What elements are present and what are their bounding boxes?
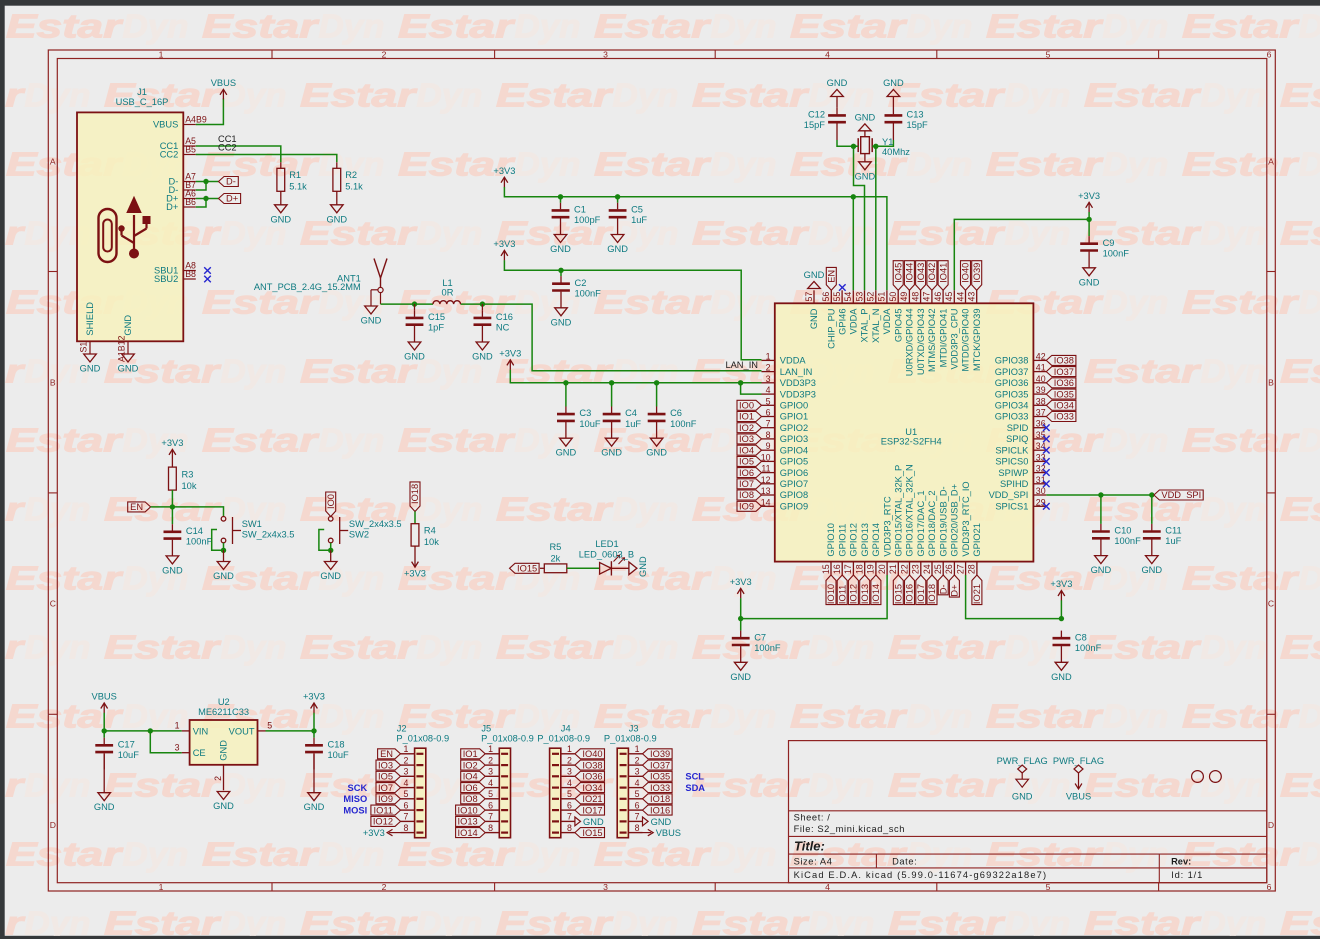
svg-text:Estar: Estar xyxy=(692,767,810,804)
svg-text:Dyn: Dyn xyxy=(319,698,385,735)
svg-text:GPIO33: GPIO33 xyxy=(995,412,1029,422)
svg-text:GPIO15/XTAL_32K_P: GPIO15/XTAL_32K_P xyxy=(894,465,904,557)
svg-text:IO15: IO15 xyxy=(894,584,904,604)
svg-text:+3V3: +3V3 xyxy=(1050,579,1072,589)
svg-text:GPIO0: GPIO0 xyxy=(780,401,808,411)
svg-text:Dyn: Dyn xyxy=(319,836,385,873)
svg-text:VBUS: VBUS xyxy=(1066,792,1091,802)
svg-text:VDDA: VDDA xyxy=(882,308,892,335)
svg-text:GND: GND xyxy=(638,556,648,577)
svg-text:GND: GND xyxy=(1012,792,1033,802)
svg-text:55: 55 xyxy=(832,292,842,302)
svg-text:IO1: IO1 xyxy=(739,412,754,422)
svg-text:SBU2: SBU2 xyxy=(154,274,178,284)
svg-text:GND: GND xyxy=(583,817,604,827)
svg-text:47: 47 xyxy=(922,292,932,302)
svg-text:IO36: IO36 xyxy=(1054,378,1074,388)
svg-text:5: 5 xyxy=(488,789,493,799)
svg-text:IO11: IO11 xyxy=(837,585,847,604)
svg-text:GPIO34: GPIO34 xyxy=(995,401,1029,411)
svg-text:IO18: IO18 xyxy=(927,584,937,604)
svg-text:GND: GND xyxy=(730,672,751,682)
svg-text:10: 10 xyxy=(761,452,771,462)
svg-text:IO10: IO10 xyxy=(458,805,478,815)
svg-text:Dyn: Dyn xyxy=(221,767,287,804)
svg-text:Date:: Date: xyxy=(892,857,917,867)
svg-text:R5: R5 xyxy=(549,542,561,552)
svg-text:9: 9 xyxy=(766,441,771,451)
svg-text:Dyn: Dyn xyxy=(1103,146,1169,183)
svg-text:Rev:: Rev: xyxy=(1171,857,1191,867)
svg-text:IO17: IO17 xyxy=(916,584,926,604)
svg-text:Estar: Estar xyxy=(496,629,614,666)
svg-text:+3V3: +3V3 xyxy=(303,692,325,702)
svg-text:CC2: CC2 xyxy=(160,150,179,160)
svg-text:C7: C7 xyxy=(754,632,766,642)
svg-text:D+: D+ xyxy=(950,584,960,596)
svg-text:Estar: Estar xyxy=(1084,77,1202,114)
svg-text:4: 4 xyxy=(488,778,493,788)
svg-text:12: 12 xyxy=(761,475,771,485)
svg-text:Estar: Estar xyxy=(6,698,124,735)
svg-text:C12: C12 xyxy=(808,110,825,120)
svg-text:2: 2 xyxy=(382,50,387,60)
svg-text:IO9: IO9 xyxy=(378,794,393,804)
svg-text:GND: GND xyxy=(855,112,876,122)
svg-text:Dyn: Dyn xyxy=(221,629,287,666)
svg-text:Title:: Title: xyxy=(794,839,825,854)
svg-text:Size: A4: Size: A4 xyxy=(794,857,833,867)
svg-text:Estar: Estar xyxy=(104,629,222,666)
svg-text:11: 11 xyxy=(761,464,770,474)
svg-text:J3: J3 xyxy=(629,724,639,734)
svg-text:IO15: IO15 xyxy=(517,564,537,574)
svg-text:CC2: CC2 xyxy=(218,142,237,152)
svg-text:IO45: IO45 xyxy=(893,263,903,283)
svg-text:7: 7 xyxy=(766,419,771,429)
svg-text:GND: GND xyxy=(855,171,876,181)
svg-text:GND: GND xyxy=(213,801,234,811)
svg-text:Estar: Estar xyxy=(594,8,712,45)
svg-text:GND: GND xyxy=(651,817,672,827)
svg-text:5.1k: 5.1k xyxy=(345,181,363,191)
svg-text:GND: GND xyxy=(601,448,622,458)
svg-text:IO9: IO9 xyxy=(739,502,754,512)
svg-text:4: 4 xyxy=(635,778,640,788)
svg-text:Estar: Estar xyxy=(1182,284,1300,321)
svg-text:VDD3P3_CPU: VDD3P3_CPU xyxy=(950,309,960,370)
svg-text:Dyn: Dyn xyxy=(1299,146,1320,183)
svg-text:USB_C_16P: USB_C_16P xyxy=(116,97,169,107)
svg-text:8: 8 xyxy=(403,823,408,833)
svg-text:GPIO14: GPIO14 xyxy=(871,523,881,557)
svg-text:IO41: IO41 xyxy=(938,263,948,283)
svg-text:A4B9: A4B9 xyxy=(185,114,207,124)
svg-text:38: 38 xyxy=(1036,396,1046,406)
svg-text:IO37: IO37 xyxy=(1054,367,1074,377)
svg-text:IO4: IO4 xyxy=(739,445,754,455)
svg-text:GPIO12: GPIO12 xyxy=(849,523,859,557)
svg-text:+3V3: +3V3 xyxy=(1078,191,1100,201)
svg-text:26: 26 xyxy=(944,564,954,574)
svg-text:100nF: 100nF xyxy=(670,419,697,429)
svg-text:SPICS1: SPICS1 xyxy=(995,502,1028,512)
svg-text:GPIO2: GPIO2 xyxy=(780,423,808,433)
svg-text:2k: 2k xyxy=(550,553,560,563)
svg-text:Estar: Estar xyxy=(1182,560,1300,597)
svg-text:Dyn: Dyn xyxy=(809,767,875,804)
svg-text:IO12: IO12 xyxy=(849,584,859,604)
svg-text:D-: D- xyxy=(226,177,236,187)
svg-text:SPID: SPID xyxy=(1007,423,1029,433)
svg-text:Estar: Estar xyxy=(398,422,516,459)
svg-text:6: 6 xyxy=(1267,50,1272,60)
svg-text:IO6: IO6 xyxy=(739,468,754,478)
svg-text:Estar: Estar xyxy=(594,146,712,183)
svg-text:IO6: IO6 xyxy=(463,783,478,793)
svg-text:Dyn: Dyn xyxy=(515,8,581,45)
svg-text:GPIO4: GPIO4 xyxy=(780,445,808,455)
svg-text:GND: GND xyxy=(219,740,229,761)
svg-text:Estar: Estar xyxy=(692,215,810,252)
svg-text:C10: C10 xyxy=(1114,526,1131,536)
svg-text:Estar: Estar xyxy=(986,698,1104,735)
svg-text:Estar: Estar xyxy=(104,77,222,114)
svg-text:GPIO19/USB_D-: GPIO19/USB_D- xyxy=(938,486,948,556)
svg-text:VDD3P3: VDD3P3 xyxy=(780,378,816,388)
svg-text:GPIO38: GPIO38 xyxy=(995,356,1029,366)
svg-text:3: 3 xyxy=(567,767,572,777)
svg-text:Dyn: Dyn xyxy=(1103,698,1169,735)
svg-text:SW1: SW1 xyxy=(242,519,262,529)
svg-text:6: 6 xyxy=(488,800,493,810)
svg-text:23: 23 xyxy=(911,564,921,574)
svg-text:100nF: 100nF xyxy=(575,288,602,298)
svg-text:C18: C18 xyxy=(328,739,345,749)
svg-text:GPIO5: GPIO5 xyxy=(780,457,808,467)
svg-text:2: 2 xyxy=(488,755,493,765)
svg-text:IO43: IO43 xyxy=(916,263,926,283)
svg-text:Dyn: Dyn xyxy=(711,836,777,873)
svg-text:R3: R3 xyxy=(182,469,194,479)
svg-text:IO5: IO5 xyxy=(378,772,393,782)
svg-text:A: A xyxy=(1268,156,1274,166)
svg-text:GND: GND xyxy=(80,364,101,374)
svg-text:Dyn: Dyn xyxy=(711,698,777,735)
svg-text:GND: GND xyxy=(162,565,183,575)
svg-text:B6: B6 xyxy=(185,197,196,207)
svg-text:CHIP_PU: CHIP_PU xyxy=(827,309,837,349)
svg-text:Dyn: Dyn xyxy=(1201,905,1267,940)
svg-text:Dyn: Dyn xyxy=(1299,836,1320,873)
svg-text:VDD3P3: VDD3P3 xyxy=(780,389,816,399)
svg-text:Dyn: Dyn xyxy=(711,146,777,183)
svg-text:1: 1 xyxy=(567,744,572,754)
svg-text:100nF: 100nF xyxy=(1103,248,1130,258)
svg-text:GND: GND xyxy=(809,308,819,329)
svg-text:GPIO20/USB_D+: GPIO20/USB_D+ xyxy=(950,484,960,557)
svg-text:SDA: SDA xyxy=(685,783,705,793)
svg-text:3: 3 xyxy=(635,767,640,777)
svg-text:Dyn: Dyn xyxy=(613,491,679,528)
svg-text:B: B xyxy=(1268,378,1274,388)
svg-text:Estar: Estar xyxy=(398,836,516,873)
svg-text:1: 1 xyxy=(159,50,164,60)
svg-text:C3: C3 xyxy=(579,408,591,418)
svg-text:Estar: Estar xyxy=(888,905,1006,940)
svg-text:6: 6 xyxy=(1267,882,1272,892)
svg-text:Dyn: Dyn xyxy=(417,629,483,666)
svg-text:SPIWP: SPIWP xyxy=(998,468,1028,478)
svg-text:28: 28 xyxy=(967,564,977,574)
svg-text:SPICS0: SPICS0 xyxy=(995,457,1028,467)
svg-text:Dyn: Dyn xyxy=(417,905,483,940)
svg-text:GND: GND xyxy=(883,78,904,88)
svg-text:48: 48 xyxy=(910,292,920,302)
svg-text:GND: GND xyxy=(270,214,291,224)
svg-text:100nF: 100nF xyxy=(186,537,213,547)
svg-text:27: 27 xyxy=(955,564,965,574)
svg-text:Dyn: Dyn xyxy=(123,836,189,873)
svg-text:Estar: Estar xyxy=(888,77,1006,114)
svg-text:IO38: IO38 xyxy=(1054,356,1074,366)
svg-text:Dyn: Dyn xyxy=(515,836,581,873)
svg-text:IO35: IO35 xyxy=(650,772,670,782)
svg-text:5: 5 xyxy=(567,789,572,799)
svg-text:Estar: Estar xyxy=(692,77,810,114)
svg-text:7: 7 xyxy=(635,812,640,822)
svg-text:VBUS: VBUS xyxy=(656,828,681,838)
svg-text:IO8: IO8 xyxy=(739,490,754,500)
svg-text:Estar: Estar xyxy=(790,8,908,45)
svg-text:20: 20 xyxy=(877,564,887,574)
svg-text:51: 51 xyxy=(877,292,887,302)
svg-text:8: 8 xyxy=(766,430,771,440)
svg-text:Dyn: Dyn xyxy=(1201,491,1267,528)
svg-text:57: 57 xyxy=(804,292,814,302)
svg-text:IO40: IO40 xyxy=(582,749,602,759)
svg-text:IO7: IO7 xyxy=(378,783,393,793)
svg-text:ANT_PCB_2.4G_15.2MM: ANT_PCB_2.4G_15.2MM xyxy=(254,282,361,292)
svg-text:7: 7 xyxy=(488,812,493,822)
svg-text:Dyn: Dyn xyxy=(417,77,483,114)
svg-text:IO1: IO1 xyxy=(463,749,478,759)
svg-text:30: 30 xyxy=(1036,486,1046,496)
svg-text:GND: GND xyxy=(123,315,133,336)
svg-text:1: 1 xyxy=(488,744,493,754)
svg-text:VDD_SPI: VDD_SPI xyxy=(989,490,1029,500)
svg-text:J2: J2 xyxy=(397,724,407,734)
svg-text:U0TXD/GPIO43: U0TXD/GPIO43 xyxy=(916,309,926,376)
svg-text:Estar: Estar xyxy=(986,146,1104,183)
svg-text:R4: R4 xyxy=(424,525,436,535)
svg-text:46: 46 xyxy=(933,292,943,302)
svg-text:C17: C17 xyxy=(118,739,135,749)
svg-text:Estar: Estar xyxy=(790,698,908,735)
svg-text:IO3: IO3 xyxy=(378,760,393,770)
svg-text:D: D xyxy=(1268,820,1274,830)
svg-text:EN: EN xyxy=(827,270,837,283)
svg-text:Estar: Estar xyxy=(496,491,614,528)
svg-text:6: 6 xyxy=(635,800,640,810)
svg-text:SPICLK: SPICLK xyxy=(995,445,1029,455)
svg-text:XTAL_P: XTAL_P xyxy=(860,309,870,343)
svg-text:Estar: Estar xyxy=(986,8,1104,45)
svg-text:Estar: Estar xyxy=(398,698,516,735)
svg-text:Estar: Estar xyxy=(1280,77,1320,114)
svg-text:+3V3: +3V3 xyxy=(730,577,752,587)
svg-text:IO3: IO3 xyxy=(739,434,754,444)
svg-text:Dyn: Dyn xyxy=(1103,8,1169,45)
svg-text:GPIO3: GPIO3 xyxy=(780,434,808,444)
svg-text:Estar: Estar xyxy=(300,905,418,940)
svg-text:29: 29 xyxy=(1036,497,1046,507)
svg-text:15: 15 xyxy=(821,564,831,574)
svg-text:34: 34 xyxy=(1036,441,1046,451)
svg-text:4: 4 xyxy=(766,385,771,395)
svg-text:+3V3: +3V3 xyxy=(493,166,515,176)
svg-text:EN: EN xyxy=(130,502,143,512)
svg-text:GND: GND xyxy=(404,352,425,362)
svg-text:C13: C13 xyxy=(907,110,924,120)
svg-text:19: 19 xyxy=(866,564,876,574)
svg-text:NC: NC xyxy=(496,323,510,333)
svg-text:10k: 10k xyxy=(182,481,197,491)
svg-text:14: 14 xyxy=(761,497,771,507)
svg-text:40Mhz: 40Mhz xyxy=(882,147,910,157)
svg-text:3: 3 xyxy=(603,882,608,892)
svg-text:GND: GND xyxy=(607,244,628,254)
svg-text:D-: D- xyxy=(938,584,948,594)
svg-text:IO13: IO13 xyxy=(860,584,870,604)
svg-text:Sheet: /: Sheet: / xyxy=(794,813,831,823)
svg-text:MTDD/GPIO40: MTDD/GPIO40 xyxy=(961,308,971,371)
svg-text:Estar: Estar xyxy=(692,905,810,940)
svg-text:GND: GND xyxy=(472,352,493,362)
svg-text:D+: D+ xyxy=(226,194,238,204)
svg-text:LAN_IN: LAN_IN xyxy=(780,367,813,377)
svg-text:Estar: Estar xyxy=(888,767,1006,804)
svg-text:C11: C11 xyxy=(1165,526,1181,536)
svg-text:Dyn: Dyn xyxy=(1201,77,1267,114)
svg-text:Estar: Estar xyxy=(1182,146,1300,183)
svg-text:IO18: IO18 xyxy=(410,484,420,504)
svg-text:24: 24 xyxy=(922,564,932,574)
svg-text:C9: C9 xyxy=(1103,238,1115,248)
svg-text:+3V3: +3V3 xyxy=(499,349,521,359)
svg-text:GND: GND xyxy=(1079,277,1100,287)
svg-text:MISO: MISO xyxy=(343,794,367,804)
svg-text:Estar: Estar xyxy=(1280,353,1320,390)
svg-text:Estar: Estar xyxy=(6,836,124,873)
svg-text:Dyn: Dyn xyxy=(1299,8,1320,45)
svg-text:10uF: 10uF xyxy=(579,419,601,429)
svg-text:SW_2x4x3.5: SW_2x4x3.5 xyxy=(349,519,402,529)
svg-text:Dyn: Dyn xyxy=(1103,422,1169,459)
svg-text:P_01x08-0.9: P_01x08-0.9 xyxy=(396,733,449,743)
svg-text:1: 1 xyxy=(635,744,640,754)
svg-text:C8: C8 xyxy=(1075,632,1087,642)
svg-text:IO10: IO10 xyxy=(826,584,836,604)
svg-text:6: 6 xyxy=(567,800,572,810)
svg-text:VDD3P3_RTC: VDD3P3_RTC xyxy=(882,496,892,557)
svg-text:SW2: SW2 xyxy=(349,530,369,540)
svg-text:SPIQ: SPIQ xyxy=(1006,434,1028,444)
svg-text:Estar: Estar xyxy=(6,422,124,459)
svg-text:7: 7 xyxy=(403,812,408,822)
svg-text:5: 5 xyxy=(635,789,640,799)
svg-text:Dyn: Dyn xyxy=(123,8,189,45)
svg-text:5: 5 xyxy=(766,396,771,406)
svg-text:GPIO9: GPIO9 xyxy=(780,502,808,512)
svg-text:52: 52 xyxy=(866,292,876,302)
svg-text:IO5: IO5 xyxy=(739,457,754,467)
svg-text:1: 1 xyxy=(159,882,164,892)
svg-text:3: 3 xyxy=(403,767,408,777)
svg-text:C6: C6 xyxy=(670,408,682,418)
svg-text:P_01x08-0.9: P_01x08-0.9 xyxy=(604,733,657,743)
svg-text:Estar: Estar xyxy=(692,629,810,666)
svg-text:Estar: Estar xyxy=(104,491,222,528)
svg-text:IO7: IO7 xyxy=(739,479,754,489)
svg-text:SPIHD: SPIHD xyxy=(1000,479,1029,489)
svg-text:4: 4 xyxy=(567,778,572,788)
svg-text:IO0: IO0 xyxy=(326,494,336,509)
svg-text:4: 4 xyxy=(403,778,408,788)
svg-text:1: 1 xyxy=(175,721,180,731)
svg-text:C: C xyxy=(50,599,56,609)
svg-text:VDD3P3_RTC_IO: VDD3P3_RTC_IO xyxy=(961,481,971,556)
svg-text:CE: CE xyxy=(193,748,206,758)
svg-text:Estar: Estar xyxy=(202,8,320,45)
svg-text:GND: GND xyxy=(326,214,347,224)
svg-text:VDD_SPI: VDD_SPI xyxy=(1161,490,1201,500)
svg-text:MOSI: MOSI xyxy=(343,805,367,815)
svg-text:R1: R1 xyxy=(289,170,301,180)
svg-text:45: 45 xyxy=(944,292,954,302)
svg-text:D+: D+ xyxy=(166,202,178,212)
svg-text:IO21: IO21 xyxy=(972,584,982,604)
svg-text:File: S2_mini.kicad_sch: File: S2_mini.kicad_sch xyxy=(794,824,905,834)
svg-text:Dyn: Dyn xyxy=(417,215,483,252)
svg-text:+3V3: +3V3 xyxy=(493,239,515,249)
svg-text:GPIO21: GPIO21 xyxy=(972,523,982,557)
svg-text:Estar: Estar xyxy=(300,215,418,252)
svg-text:Dyn: Dyn xyxy=(1299,284,1320,321)
svg-text:GPIO36: GPIO36 xyxy=(995,378,1029,388)
svg-text:5: 5 xyxy=(1046,50,1051,60)
svg-text:Dyn: Dyn xyxy=(1103,284,1169,321)
svg-text:IO36: IO36 xyxy=(582,772,602,782)
svg-text:1: 1 xyxy=(403,744,408,754)
svg-text:IO16: IO16 xyxy=(905,584,915,604)
svg-text:1: 1 xyxy=(766,351,771,361)
svg-text:Dyn: Dyn xyxy=(907,698,973,735)
svg-text:MTCK/GPIO39: MTCK/GPIO39 xyxy=(972,309,982,372)
svg-text:GND: GND xyxy=(646,448,667,458)
svg-text:S1: S1 xyxy=(79,342,89,353)
svg-text:2: 2 xyxy=(213,776,223,781)
svg-text:3: 3 xyxy=(603,50,608,60)
svg-text:Estar: Estar xyxy=(202,836,320,873)
svg-text:C: C xyxy=(1268,599,1274,609)
svg-text:VDDA: VDDA xyxy=(849,308,859,335)
svg-text:GND: GND xyxy=(94,802,115,812)
svg-text:5: 5 xyxy=(403,789,408,799)
svg-text:C5: C5 xyxy=(631,205,643,215)
svg-text:IO21: IO21 xyxy=(582,794,602,804)
svg-text:Dyn: Dyn xyxy=(221,353,287,390)
